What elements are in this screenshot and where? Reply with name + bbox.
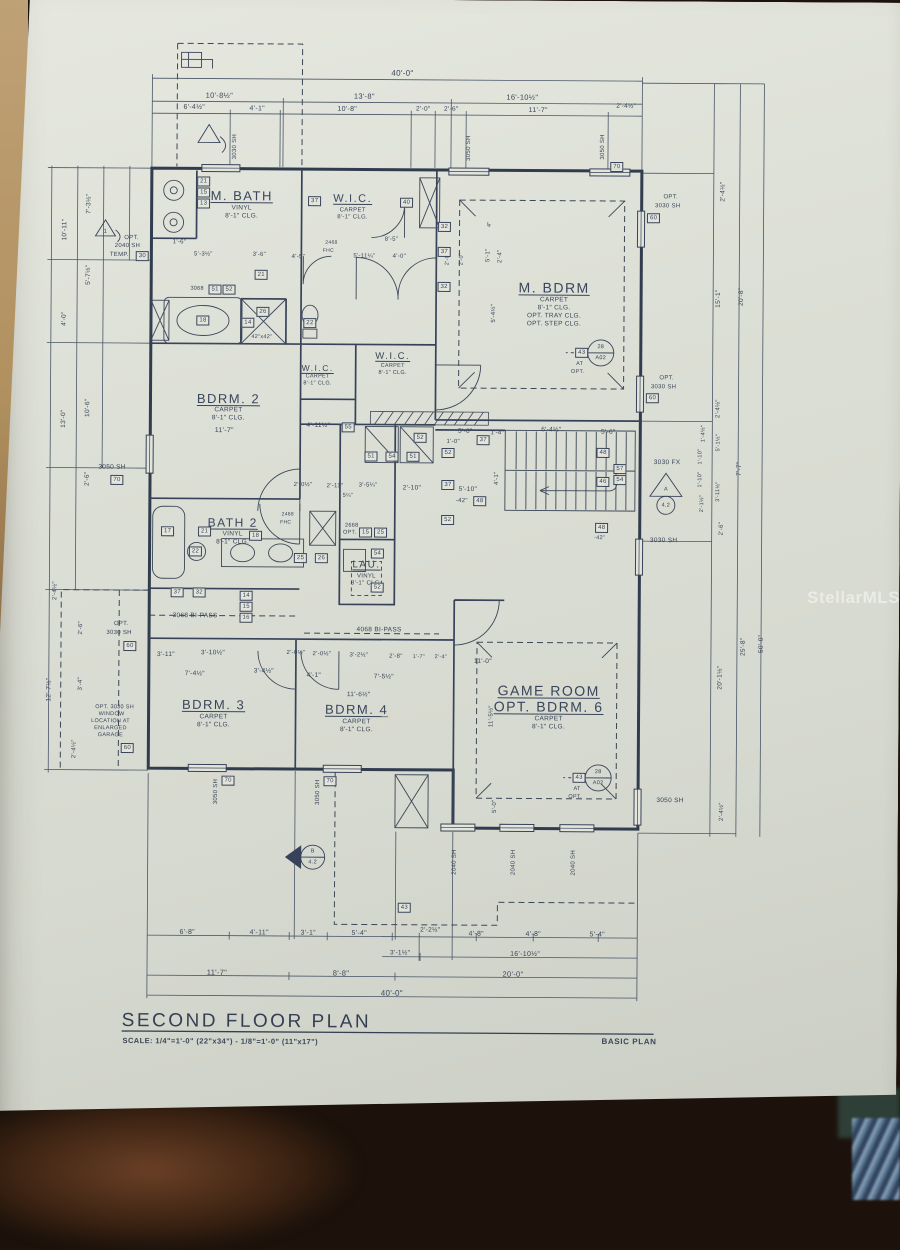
plan-text: 5'-11¼" (353, 253, 375, 259)
plan-text: 3'-11" (157, 652, 175, 659)
plan-text: VINYL (231, 205, 251, 212)
keynote-box: 54 (385, 452, 398, 462)
plan-text: 20'-1½" (717, 666, 724, 690)
plan-text: 13'-8" (354, 93, 375, 101)
mls-watermark: StellarMLS (758, 588, 900, 608)
keynote-box: 22 (189, 546, 202, 556)
plan-text: 3'-6" (253, 252, 266, 258)
plan-text: OPT. TRAY CLG. (527, 313, 581, 320)
plan-text: 10'-11" (62, 219, 69, 241)
plan-text: 12'-7½" (46, 677, 53, 701)
plan-text: 11'-0" (474, 659, 492, 666)
keynote-box: 25 (374, 528, 387, 538)
plan-text: 11'-7" (207, 969, 227, 977)
keynote-box: 26 (256, 307, 269, 317)
room-label-m-bdrm: M. BDRM (519, 280, 590, 294)
plan-text: 11'-7" (215, 427, 234, 434)
room-label-bdrm-2: BDRM. 2 (197, 392, 260, 405)
plan-text: CARPET (199, 714, 227, 721)
plan-text: 2'-1½" (700, 495, 706, 512)
plan-text: GARAGE (98, 733, 123, 739)
plan-text: OPT. (571, 370, 584, 376)
plan-text: 2'-6" (719, 522, 725, 535)
plan-text: 6'-4½" (183, 104, 205, 111)
revision-triangle (95, 220, 120, 242)
keynote-box: 70 (610, 162, 623, 172)
plan-text: 4'-1" (250, 105, 265, 112)
plan-text: 1'-4" (491, 430, 504, 436)
photo-background-blur (0, 1090, 360, 1250)
keynote-box: 37 (438, 247, 451, 257)
plan-text: OPT. 3030 SH (95, 705, 134, 711)
plan-text: 1'-4½" (701, 425, 707, 442)
plan-text: 3068 BI-PASS (173, 613, 218, 620)
plan-text: 16'-10½" (510, 951, 540, 958)
plan-text: 10'-8" (337, 106, 357, 113)
electrical-panel-symbol (182, 52, 202, 67)
plan-text: 6'-8" (179, 929, 194, 936)
plan-text: 2'-4" (497, 250, 503, 263)
plan-text: 3'-10½" (201, 650, 225, 657)
plan-text: 2'-11" (327, 483, 344, 489)
plan-text: 5'-0" (492, 800, 498, 813)
keynote-box: 37 (441, 480, 454, 490)
keynote-box: 55 (342, 422, 355, 432)
room-label-wic-2: W.I.C. (302, 364, 334, 373)
plan-text: 5'-7½" (86, 265, 93, 285)
plan-text: 5'-4½" (491, 304, 497, 323)
plan-text: 40'-0" (391, 70, 413, 78)
plan-text: 4.2 (308, 860, 317, 866)
plan-text: 3050 SH (466, 135, 472, 160)
keynote-box: 60 (123, 641, 136, 651)
keynote-box: 21 (255, 270, 268, 280)
plan-text: 50'-0" (759, 635, 766, 653)
keynote-box: 15 (359, 527, 372, 537)
keynote-box: 48 (473, 496, 486, 506)
plan-text: 2'-8" (389, 654, 402, 660)
plan-text: VINYL (357, 573, 376, 579)
plan-text: 7'-4½" (185, 671, 205, 678)
keynote-box: 37 (477, 435, 490, 445)
plan-text: 2'-6" (444, 107, 458, 114)
plan-text: 2'-6" (78, 621, 84, 634)
plan-text: 4'-11½" (307, 423, 331, 430)
keynote-box: 60 (646, 393, 659, 403)
keynote-box: 25 (294, 553, 307, 563)
plan-text: 2'-6" (85, 472, 92, 486)
plan-text: 8'-1" CLG. (212, 415, 245, 422)
plan-text: 20'-8" (739, 288, 746, 306)
keynote-box: 54 (371, 549, 384, 559)
plan-text: 2668 (345, 524, 358, 530)
plan-text: 10'-8½" (206, 92, 234, 100)
plan-text: 40'-0" (381, 990, 403, 998)
plan-text: 2'-4½" (616, 104, 636, 111)
plan-text: 8'-8" (333, 970, 349, 978)
keynote-box: 43 (398, 903, 411, 913)
plan-text: 3050 SH (656, 798, 683, 805)
room-label-lau: LAU. (352, 560, 380, 570)
keynote-box: 48 (595, 523, 608, 533)
bath2-tub (152, 506, 184, 578)
drawing-title: SECOND FLOOR PLAN (122, 1010, 372, 1034)
keynote-box: 54 (613, 475, 626, 485)
plan-text: 3068 (190, 287, 203, 293)
plan-text: 11'-5½" (488, 705, 494, 727)
plan-text: 1'-7" (413, 655, 425, 661)
door-swings (257, 204, 502, 690)
plan-text: 1'-10" (698, 472, 704, 488)
keynote-box: 37 (308, 196, 321, 206)
plan-text: CARPET (534, 716, 562, 723)
plan-text: 42"x42" (251, 335, 272, 341)
plan-text: 2468 (282, 512, 294, 517)
keynote-box: 14 (241, 318, 254, 328)
plan-text: 11'-6½" (347, 692, 371, 699)
plan-text: 2'-4" (435, 655, 447, 661)
plan-text: -42" (456, 498, 468, 504)
plan-text: 8'-1" CLG. (225, 213, 258, 220)
keynote-box: 57 (613, 464, 626, 474)
plan-text: OPT. (343, 531, 356, 537)
plan-text: FHC (323, 249, 334, 254)
plan-type-label: BASIC PLAN (602, 1037, 657, 1046)
plan-text: 3030 SH (232, 134, 238, 159)
plan-text: CARPET (306, 374, 330, 380)
drawing-scale-note: SCALE: 1/4"=1'-0" (22"x34") - 1/8"=1'-0"… (123, 1036, 318, 1046)
plan-text: 20'-0" (503, 971, 524, 979)
plan-text: 8'-1" CLG. (337, 214, 368, 220)
plan-text: 5'-3½" (194, 251, 213, 257)
plan-text: 7'-3½" (86, 194, 93, 214)
plan-text: A (664, 488, 668, 494)
plan-text: WINDOW (99, 712, 125, 718)
plan-text: 4'-0" (62, 311, 69, 325)
plan-text: 2040 SH (452, 849, 458, 874)
room-label-bdrm-4: BDRM. 4 (325, 703, 388, 716)
chase-boxes (148, 176, 440, 828)
keynote-box: 48 (596, 448, 609, 458)
master-vanity-sink (164, 212, 184, 232)
plan-text: AT (576, 362, 583, 368)
plan-text: 10'-6" (85, 399, 92, 417)
plan-text: OPT. (124, 235, 139, 241)
plan-text: 3030 SH (655, 203, 680, 209)
plan-text: 25'-8" (741, 638, 748, 656)
plan-text: 3050 SH (600, 134, 606, 159)
plan-text: 8'-1" CLG. (197, 722, 230, 729)
plan-text: TEMP. (110, 252, 129, 258)
exterior-walls (148, 168, 642, 829)
plan-text: 4'-1" (307, 673, 321, 680)
plan-text: 4'-5" (292, 254, 305, 260)
room-label-bdrm-3: BDRM. 3 (182, 698, 245, 711)
plan-text: 8'-1" CLG. (303, 381, 331, 387)
plan-text: CARPET (214, 407, 242, 414)
plan-text: 8'-1" CLG. (378, 371, 406, 377)
denim-fabric-corner (852, 1118, 900, 1200)
plan-text: 1'-10" (698, 449, 704, 465)
plan-text: ENLARGED (94, 726, 127, 732)
plan-text: 5'-1½" (716, 434, 722, 451)
plan-text: 3'-11½" (716, 481, 722, 501)
keynote-box: 52 (371, 583, 384, 593)
room-label-wic-master: W.I.C. (333, 194, 372, 205)
plan-text: 28 (595, 770, 602, 776)
plan-text: OPT. (114, 621, 129, 627)
keynote-box: 17 (161, 526, 174, 536)
plan-text: 2040 SH (511, 850, 517, 875)
window-center-lines (147, 168, 641, 829)
plan-text: 3030 FX (654, 460, 681, 467)
plan-text: 4'-8" (525, 931, 540, 938)
plan-text: 3050 SH (315, 779, 321, 804)
keynote-box: 37 (171, 587, 184, 597)
plan-text: 4'-1" (494, 472, 500, 485)
plan-text: A02 (595, 356, 606, 362)
plan-text: 7'-5½" (374, 674, 394, 681)
optional-dashed-outlines (59, 43, 642, 927)
keynote-box: 52 (222, 285, 235, 295)
plan-text: 4.2 (662, 504, 671, 510)
plan-text: 3030 SH (650, 538, 677, 545)
plan-text: 7'-7" (737, 462, 744, 476)
plan-text: OPT. (568, 795, 581, 801)
plan-text: 2'-4½" (719, 802, 725, 821)
plan-text: VINYL (222, 531, 242, 538)
plan-text: 3050 SH (98, 465, 125, 472)
plan-text: 5'-6" (601, 430, 615, 437)
keynote-box: 21 (198, 526, 211, 536)
plan-text: 2040 SH (571, 850, 577, 875)
keynote-box: 70 (110, 475, 123, 485)
plan-text: 5'-6" (458, 429, 472, 436)
plan-text: 4'-0" (393, 254, 406, 260)
keynote-box: 16 (239, 613, 252, 623)
keynote-box: 30 (136, 251, 149, 261)
plan-text: 2'-0" (416, 107, 430, 114)
keynote-box: 18 (196, 315, 209, 325)
plan-text: 1 (104, 229, 108, 235)
plan-text: -42" (594, 536, 605, 542)
keynote-box: 21 (197, 176, 210, 186)
revision-triangle (198, 124, 226, 152)
plan-text: 16'-10½" (506, 94, 538, 102)
plan-text: 8'-1" CLG. (216, 539, 249, 546)
master-vanity-sink (164, 180, 184, 200)
plan-text: 3'-1½" (390, 950, 410, 957)
keynote-box: 22 (303, 318, 316, 328)
plan-text: 11'-7" (529, 107, 548, 114)
plan-text: 3'-1" (300, 930, 315, 937)
keynote-box: 32 (193, 587, 206, 597)
keynote-box: 70 (221, 776, 234, 786)
plan-text: 3'-4" (78, 677, 84, 690)
plan-text: 2'-4½" (71, 739, 77, 758)
plan-text: 3030 SH (651, 384, 676, 390)
plan-text: 2'-2½" (420, 928, 440, 935)
plan-text: 3'-4½" (254, 669, 274, 676)
room-label-m-bath: M. BATH (211, 189, 273, 202)
keynote-box: 13 (197, 198, 210, 208)
plan-text: CARPET (342, 719, 370, 726)
plan-text: B (311, 849, 315, 855)
plan-text: A02 (593, 781, 604, 787)
plan-text: 5'-4" (589, 931, 604, 938)
keynote-box: 43 (575, 348, 588, 358)
plan-text: 2'-0" (460, 253, 466, 265)
window-symbols (144, 164, 645, 832)
plan-text: 5'-4" (351, 930, 366, 937)
plan-text: 4'-8" (468, 931, 483, 938)
keynote-box: 32 (438, 282, 451, 292)
room-label-wic-3: W.I.C. (375, 352, 410, 362)
keynote-box: 60 (121, 743, 134, 753)
plan-text: AT (573, 787, 580, 793)
keynote-box: 46 (596, 477, 609, 487)
plan-text: 4068 BI-PASS (357, 627, 402, 634)
plan-text: 1'-6" (173, 239, 186, 245)
plan-text: 5'-10" (459, 487, 477, 494)
hatched-wall-section (370, 412, 488, 426)
plan-text-layer: M. BATHVINYL8'-1" CLG.W.I.C.CARPET8'-1" … (3, 0, 900, 3)
plan-text: CARPET (381, 364, 405, 370)
plan-text: 8'-5" (385, 237, 398, 243)
photo-of-floor-plan: { "title_block": { "title": "SECOND FLOO… (0, 0, 900, 1200)
plan-text: OPT. (659, 375, 674, 381)
plan-text: 2040 SH (115, 243, 140, 249)
keynote-box: 32 (438, 222, 451, 232)
plan-text: 3'-2½" (350, 652, 369, 658)
room-label-game-room: GAME ROOM (498, 683, 600, 698)
plan-text: 13'-0" (61, 409, 68, 427)
keynote-box: 15 (240, 602, 253, 612)
plan-text: 8'-1" CLG. (340, 727, 373, 734)
plan-text: OPT. STEP CLG. (527, 321, 581, 328)
plan-text: 3'-5¼" (359, 482, 378, 488)
plan-text: 28 (597, 345, 604, 351)
plan-text: 2'-4½" (715, 399, 721, 418)
plan-text: 2'-0½" (313, 651, 332, 657)
plan-text: 2468 (325, 241, 337, 246)
keynote-box: 26 (315, 553, 328, 563)
keynote-box: 52 (414, 433, 427, 443)
keynote-box: 15 (197, 187, 210, 197)
keynote-box: 43 (573, 773, 586, 783)
keynote-box: 60 (647, 213, 660, 223)
keynote-box: 14 (240, 591, 253, 601)
plan-text: 3050 SH (213, 779, 219, 804)
plan-text: 2'-4½" (720, 182, 727, 202)
room-label-opt-bdrm-6: OPT. BDRM. 6 (494, 699, 604, 714)
plan-text: 4" (488, 221, 494, 227)
plan-text: 5'-1" (485, 248, 491, 261)
keynote-box: 51 (364, 451, 377, 461)
plan-text: 6'-4½" (541, 427, 561, 434)
plan-text: 1'-0" (446, 439, 459, 445)
plan-text: CARPET (540, 297, 568, 304)
plan-text: LOCATION AT (91, 719, 130, 725)
keynote-box: 70 (323, 776, 336, 786)
plan-text: FHC (280, 520, 291, 525)
plan-text: CARPET (340, 207, 366, 213)
plan-text: 4'-11" (250, 929, 269, 936)
plan-text: 2'-0½" (294, 482, 313, 488)
plan-text: OPT. (663, 194, 678, 200)
plan-text: 15'-1" (716, 289, 723, 307)
keynote-box: 52 (441, 448, 454, 458)
plan-text: 2'-0½" (287, 650, 306, 656)
room-label-bath-2: BATH 2 (208, 517, 258, 529)
plan-text: 8'-1" CLG. (532, 724, 565, 731)
interior-walls (148, 168, 642, 829)
keynote-box: 18 (249, 531, 262, 541)
keynote-box: 40 (400, 198, 413, 208)
plan-text: 3030 SH (106, 630, 131, 636)
plan-text: 2'-4½" (52, 581, 58, 600)
plan-text: 5¼" (343, 494, 354, 500)
keynote-box: 51 (208, 285, 221, 295)
plan-text: 2'-10" (403, 485, 421, 492)
keynote-box: 52 (441, 515, 454, 525)
keynote-box: 51 (406, 452, 419, 462)
plan-text: 8'-1" CLG. (538, 305, 571, 312)
